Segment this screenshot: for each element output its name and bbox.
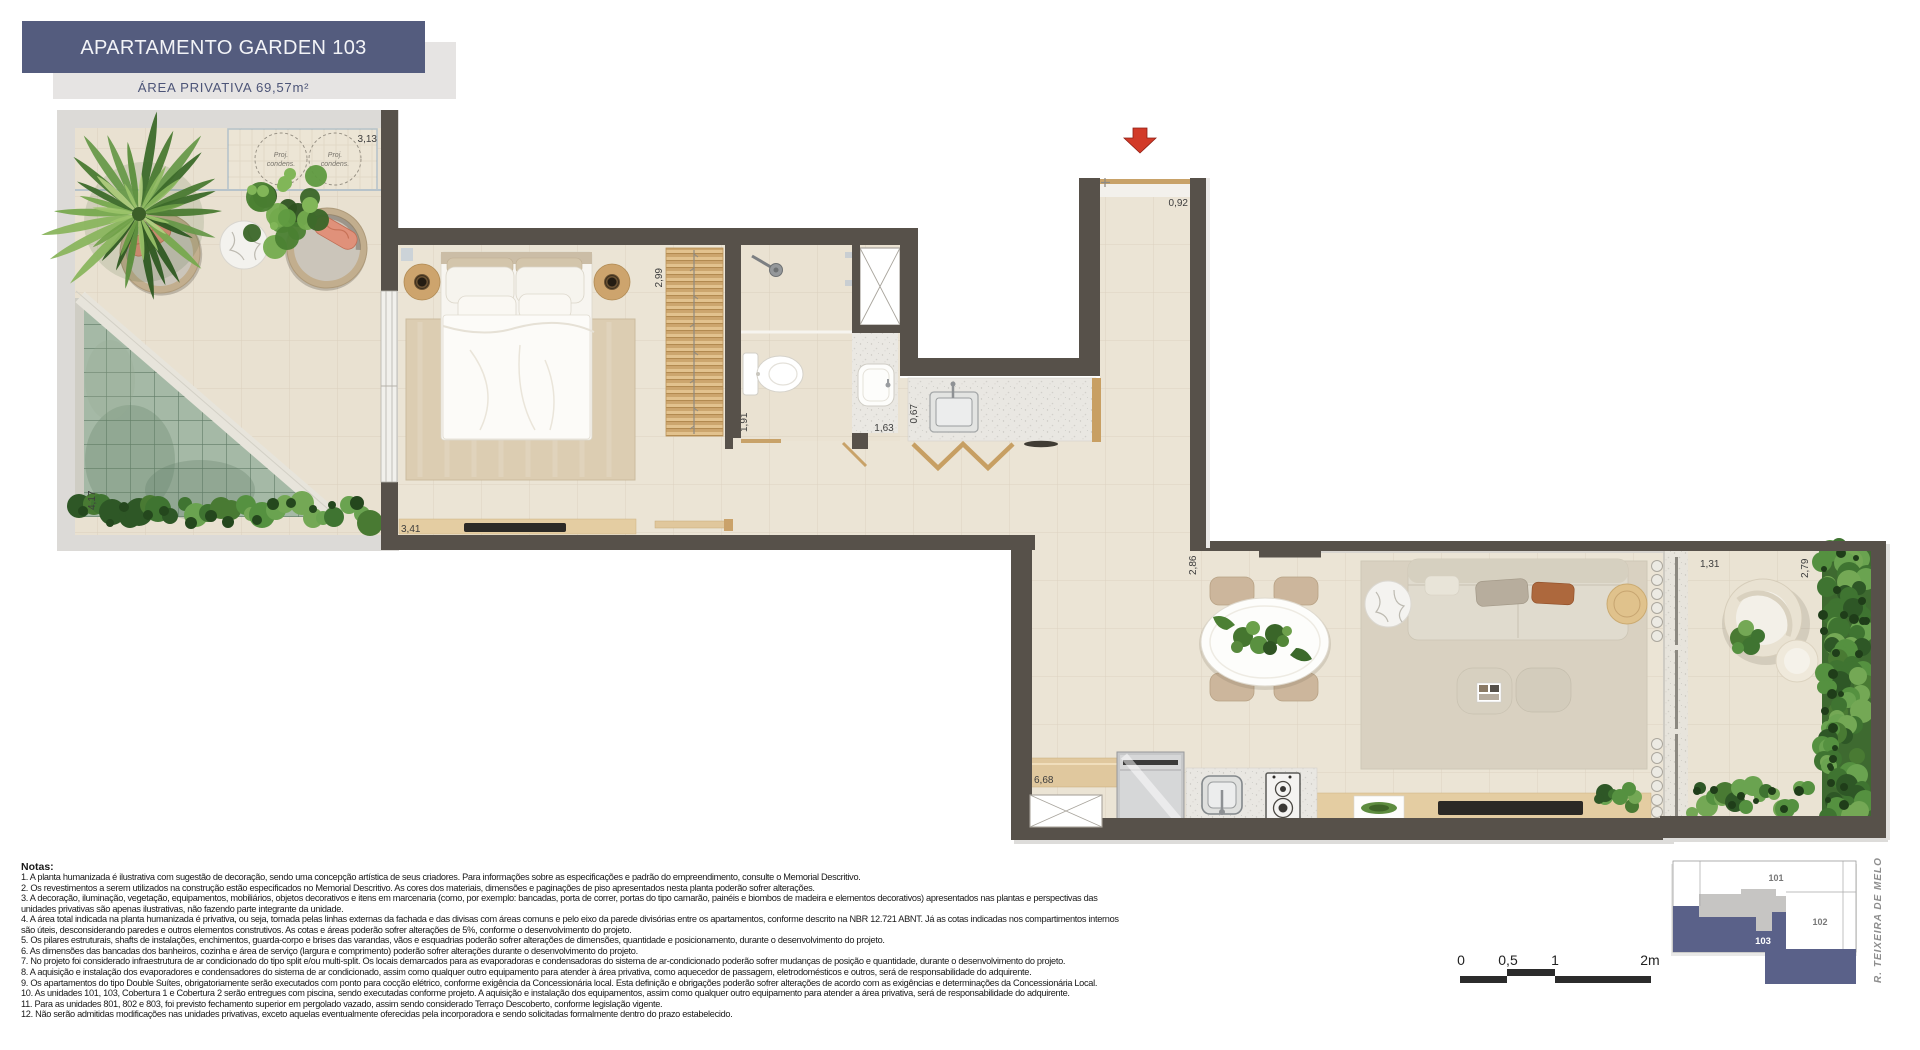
svg-text:3,41: 3,41 <box>401 524 421 535</box>
svg-text:2,86: 2,86 <box>1188 555 1199 575</box>
svg-text:1,63: 1,63 <box>874 423 894 434</box>
svg-text:2,99: 2,99 <box>654 268 665 288</box>
svg-text:3,13: 3,13 <box>358 134 378 145</box>
svg-text:2m: 2m <box>1640 952 1659 968</box>
svg-text:1: 1 <box>1551 952 1559 968</box>
svg-text:0,92: 0,92 <box>1169 198 1189 209</box>
svg-text:condens.: condens. <box>267 161 295 168</box>
svg-text:102: 102 <box>1812 917 1827 927</box>
svg-text:condens.: condens. <box>321 161 349 168</box>
svg-text:4,17: 4,17 <box>87 490 98 510</box>
svg-text:1,31: 1,31 <box>1700 559 1720 570</box>
svg-text:6,68: 6,68 <box>1034 775 1054 786</box>
svg-text:0,67: 0,67 <box>909 404 920 424</box>
svg-text:Proj.: Proj. <box>328 152 342 159</box>
svg-text:2,79: 2,79 <box>1800 558 1811 578</box>
svg-text:101: 101 <box>1768 873 1783 883</box>
svg-text:Proj.: Proj. <box>274 152 288 159</box>
svg-text:103: 103 <box>1755 936 1771 947</box>
